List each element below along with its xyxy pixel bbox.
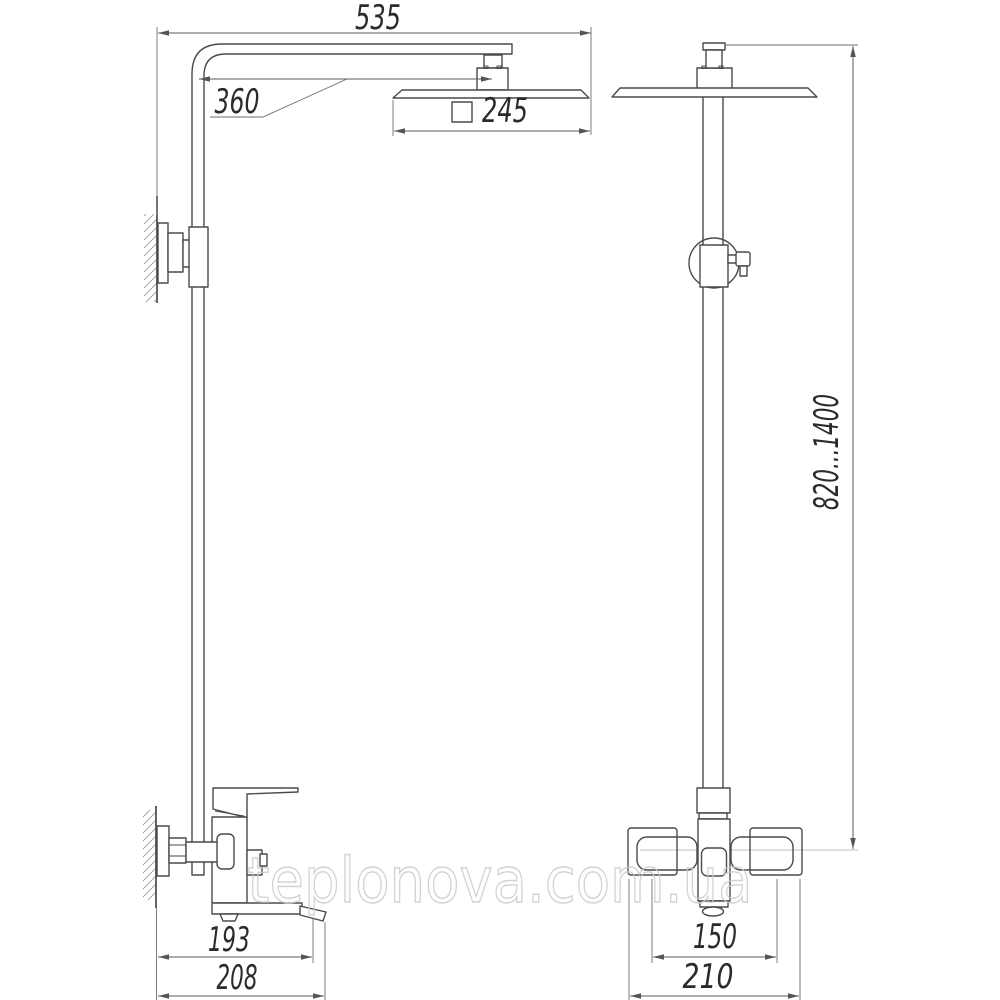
- mixer-top-connector: [697, 788, 730, 813]
- front-wall-bracket: [689, 238, 750, 288]
- head-stem-front: [706, 50, 722, 68]
- supply-wall-plate: [157, 826, 169, 876]
- dim-label-150: 150: [693, 917, 737, 957]
- inlet-flange-right: [750, 828, 802, 875]
- bracket-wall-plate: [158, 223, 168, 283]
- dim-label-210: 210: [683, 957, 734, 997]
- supply-shaft: [186, 842, 218, 862]
- arm-end-front: [703, 43, 725, 50]
- wall-hatch-top: [144, 214, 157, 302]
- bracket-arm: [168, 233, 183, 272]
- top-wall-bracket: [158, 223, 208, 287]
- dim-label-height: 820...1400: [807, 394, 847, 510]
- escutcheon-side: [217, 834, 234, 869]
- knob-stem: [740, 266, 747, 276]
- supply-nut: [169, 838, 186, 863]
- dim-label-193: 193: [208, 920, 250, 960]
- head-plate-front: [612, 88, 817, 97]
- riser-pipe-side: [192, 44, 512, 875]
- riser-pipe-front: [703, 97, 723, 788]
- shower-head-front: [612, 43, 817, 97]
- knob-head: [736, 252, 750, 266]
- bracket-slider: [189, 227, 208, 287]
- dim-label-208: 208: [217, 958, 258, 998]
- dim-label-360: 360: [215, 82, 260, 122]
- watermark-text: teplonova.com.ua: [248, 844, 753, 917]
- bracket-slider-front: [700, 245, 728, 287]
- shower-system-technical-drawing: 535 360 245 193 208 150 210 820...1400 t…: [0, 0, 1000, 1000]
- square-symbol: [452, 102, 472, 122]
- wall-hatch-bottom: [143, 810, 156, 900]
- dim-label-535: 535: [355, 0, 401, 38]
- mixer-top-band: [699, 813, 727, 819]
- dim-label-245: 245: [482, 91, 528, 131]
